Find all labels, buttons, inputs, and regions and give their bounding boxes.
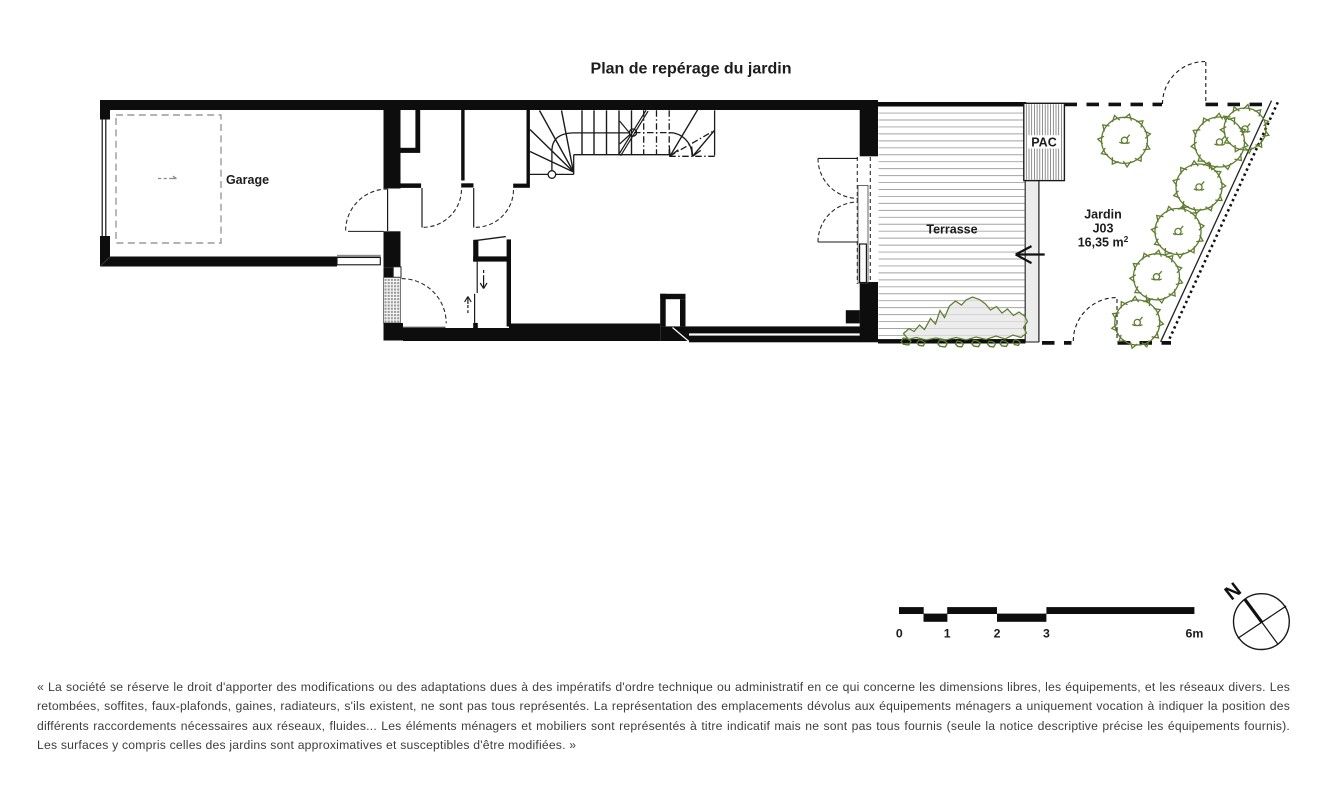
svg-text:Plan de repérage du jardin: Plan de repérage du jardin	[591, 61, 792, 78]
svg-text:Garage: Garage	[226, 173, 269, 187]
svg-text:16,35 m2: 16,35 m2	[1078, 234, 1129, 249]
svg-text:2: 2	[994, 627, 1001, 641]
svg-text:Jardin: Jardin	[1084, 208, 1122, 222]
svg-text:J03: J03	[1093, 221, 1114, 235]
svg-text:6m: 6m	[1186, 627, 1204, 641]
svg-text:1: 1	[944, 627, 951, 641]
svg-text:0: 0	[896, 627, 903, 641]
svg-text:3: 3	[1043, 627, 1050, 641]
svg-text:PAC: PAC	[1031, 136, 1056, 150]
svg-text:Terrasse: Terrasse	[926, 223, 977, 237]
